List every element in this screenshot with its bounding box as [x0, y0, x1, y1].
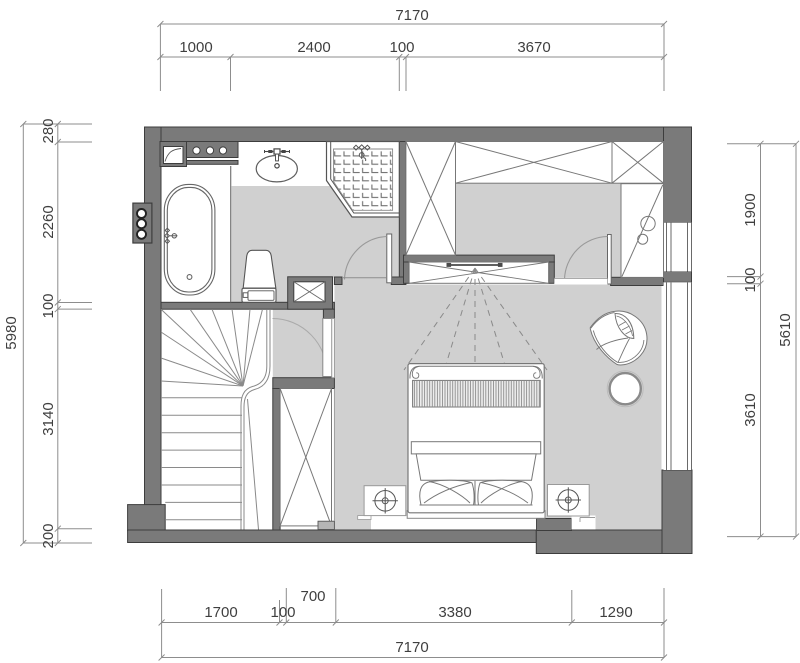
- svg-text:5610: 5610: [777, 313, 794, 346]
- svg-text:3610: 3610: [742, 393, 759, 426]
- svg-text:100: 100: [389, 39, 414, 56]
- svg-text:1700: 1700: [204, 604, 237, 621]
- svg-text:200: 200: [40, 523, 57, 548]
- svg-text:3380: 3380: [438, 604, 471, 621]
- svg-text:2260: 2260: [40, 205, 57, 238]
- svg-text:3140: 3140: [40, 402, 57, 435]
- svg-text:100: 100: [40, 293, 57, 318]
- svg-text:100: 100: [742, 267, 759, 292]
- svg-text:1900: 1900: [742, 193, 759, 226]
- svg-text:100: 100: [270, 604, 295, 621]
- svg-text:3670: 3670: [517, 39, 550, 56]
- svg-text:7170: 7170: [395, 7, 428, 24]
- svg-text:7170: 7170: [395, 639, 428, 656]
- svg-text:280: 280: [40, 118, 57, 143]
- svg-text:5980: 5980: [3, 316, 20, 349]
- svg-text:700: 700: [300, 588, 325, 605]
- svg-text:1000: 1000: [179, 39, 212, 56]
- svg-text:1290: 1290: [599, 604, 632, 621]
- svg-text:2400: 2400: [297, 39, 330, 56]
